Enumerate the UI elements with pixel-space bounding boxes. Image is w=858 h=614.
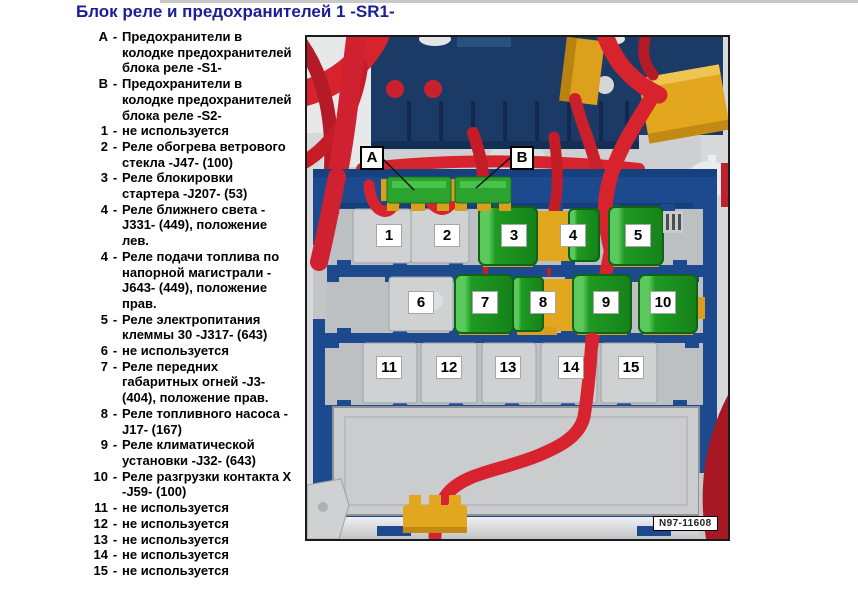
legend-separator: - [108, 563, 122, 579]
slot-label-12: 12 [436, 356, 462, 379]
legend-separator: - [108, 123, 122, 139]
legend-item: 15-не используется [78, 563, 298, 579]
legend-item: 12-не используется [78, 516, 298, 532]
legend-item: 11-не используется [78, 500, 298, 516]
legend-key: 4 [78, 249, 108, 312]
legend-text: Реле ближнего света - J331- (449), полож… [122, 202, 294, 249]
slot-label-13: 13 [495, 356, 521, 379]
legend-separator: - [108, 343, 122, 359]
legend-text: Реле климатической установки -J32- (643) [122, 437, 294, 468]
legend-text: Реле блокировки стартера -J207- (53) [122, 170, 294, 201]
legend-item: 5-Реле электропитания клеммы 30 -J317- (… [78, 312, 298, 343]
legend-key: 13 [78, 532, 108, 548]
legend-item: 13-не используется [78, 532, 298, 548]
callout-a: A [360, 146, 384, 170]
legend-item: A-Предохранители в колодке предохранител… [78, 29, 298, 76]
callout-b: B [510, 146, 534, 170]
slot-label-2: 2 [434, 224, 460, 247]
legend-item: 2-Реле обогрева ветрового стекла -J47- (… [78, 139, 298, 170]
legend-text: Предохранители в колодке предохранителей… [122, 76, 294, 123]
slot-label-7: 7 [472, 291, 498, 314]
legend-key: 5 [78, 312, 108, 343]
legend-text: не используется [122, 123, 294, 139]
slot-label-4: 4 [560, 224, 586, 247]
legend-item: 9-Реле климатической установки -J32- (64… [78, 437, 298, 468]
legend-key: 4 [78, 202, 108, 249]
legend-text: не используется [122, 547, 294, 563]
slot-label-5: 5 [625, 224, 651, 247]
legend-item: 4-Реле подачи топлива по напорной магист… [78, 249, 298, 312]
legend-text: не используется [122, 563, 294, 579]
legend-key: 7 [78, 359, 108, 406]
slot-label-11: 11 [376, 356, 402, 379]
legend-separator: - [108, 437, 122, 468]
legend-key: 10 [78, 469, 108, 500]
legend-key: A [78, 29, 108, 76]
legend-separator: - [108, 29, 122, 76]
legend-text: Реле разгрузки контакта X -J59- (100) [122, 469, 294, 500]
page-title: Блок реле и предохранителей 1 -SR1- [76, 2, 395, 22]
legend-separator: - [108, 139, 122, 170]
slot-label-14: 14 [558, 356, 584, 379]
legend-separator: - [108, 406, 122, 437]
legend-text: Реле подачи топлива по напорной магистра… [122, 249, 294, 312]
legend-key: 15 [78, 563, 108, 579]
legend-item: 8-Реле топливного насоса - J17- (167) [78, 406, 298, 437]
legend-item: 3-Реле блокировки стартера -J207- (53) [78, 170, 298, 201]
slot-label-8: 8 [530, 291, 556, 314]
legend-text: не используется [122, 516, 294, 532]
slot-label-3: 3 [501, 224, 527, 247]
legend-list: A-Предохранители в колодке предохранител… [78, 29, 298, 579]
legend-text: Реле электропитания клеммы 30 -J317- (64… [122, 312, 294, 343]
legend-key: B [78, 76, 108, 123]
slot-label-10: 10 [650, 291, 676, 314]
legend-item: 6-не используется [78, 343, 298, 359]
legend-text: не используется [122, 500, 294, 516]
slot-label-9: 9 [593, 291, 619, 314]
relay-box-photo-art [307, 37, 728, 539]
legend-key: 8 [78, 406, 108, 437]
legend-item: 1-не используется [78, 123, 298, 139]
legend-separator: - [108, 170, 122, 201]
legend-item: B-Предохранители в колодке предохранител… [78, 76, 298, 123]
legend-key: 1 [78, 123, 108, 139]
legend-item: 7-Реле передних габаритных огней -J3- (4… [78, 359, 298, 406]
legend-text: Реле топливного насоса - J17- (167) [122, 406, 294, 437]
manual-page: Блок реле и предохранителей 1 -SR1- A-Пр… [0, 0, 858, 614]
legend-key: 12 [78, 516, 108, 532]
legend-item: 14-не используется [78, 547, 298, 563]
slot-label-6: 6 [408, 291, 434, 314]
legend-key: 11 [78, 500, 108, 516]
legend-key: 9 [78, 437, 108, 468]
legend-text: Предохранители в колодке предохранителей… [122, 29, 294, 76]
legend-text: Реле обогрева ветрового стекла -J47- (10… [122, 139, 294, 170]
legend-text: не используется [122, 532, 294, 548]
figure-ref: N97-11608 [653, 516, 718, 531]
legend-text: не используется [122, 343, 294, 359]
legend-separator: - [108, 359, 122, 406]
legend-key: 2 [78, 139, 108, 170]
legend-item: 4-Реле ближнего света - J331- (449), пол… [78, 202, 298, 249]
legend-item: 10-Реле разгрузки контакта X -J59- (100) [78, 469, 298, 500]
legend-separator: - [108, 547, 122, 563]
legend-separator: - [108, 532, 122, 548]
wire-red-right-edge [721, 163, 728, 207]
legend-separator: - [108, 202, 122, 249]
slot-label-1: 1 [376, 224, 402, 247]
legend-key: 6 [78, 343, 108, 359]
bottom-yellow-connector [403, 495, 467, 533]
legend-separator: - [108, 76, 122, 123]
legend-separator: - [108, 312, 122, 343]
legend-text: Реле передних габаритных огней -J3- (404… [122, 359, 294, 406]
legend-separator: - [108, 249, 122, 312]
legend-separator: - [108, 500, 122, 516]
legend-key: 14 [78, 547, 108, 563]
striped-connector [663, 211, 683, 233]
legend-key: 3 [78, 170, 108, 201]
slot-label-15: 15 [618, 356, 644, 379]
relay-box-illustration: A B 1 2 3 4 5 6 7 8 9 10 11 12 13 14 15 … [305, 35, 730, 541]
legend-separator: - [108, 469, 122, 500]
legend-separator: - [108, 516, 122, 532]
